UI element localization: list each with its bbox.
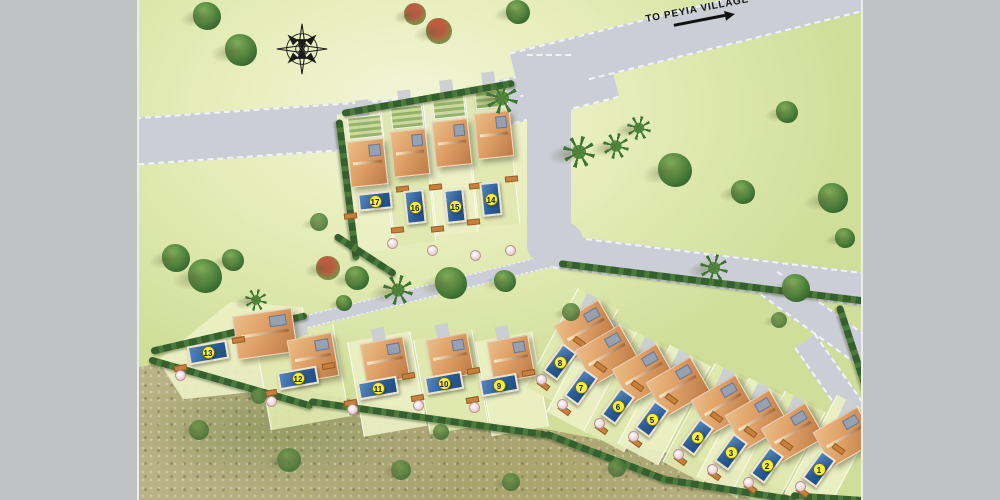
patio-table <box>707 464 718 475</box>
compass-icon <box>275 22 329 76</box>
bush-icon <box>502 473 520 491</box>
plot-number-badge: 1 <box>813 463 826 476</box>
tree-icon <box>336 295 352 311</box>
plot-number-badge: 17 <box>369 195 382 208</box>
patio-table <box>470 250 481 261</box>
tree-icon <box>225 34 257 66</box>
tree-icon <box>658 153 692 187</box>
villa-house <box>432 118 473 168</box>
tree-icon <box>435 267 467 299</box>
plot-number-badge: 11 <box>372 382 385 395</box>
patio-table <box>413 400 424 411</box>
bush-icon <box>391 460 411 480</box>
bush-icon <box>771 312 787 328</box>
site-plan: TO PEYIA VILLAGE 17161514 <box>137 0 863 500</box>
plot-number-badge: 16 <box>409 201 422 214</box>
tree-icon <box>506 0 530 24</box>
road-junction <box>527 220 583 266</box>
garden-pergola <box>390 104 424 129</box>
bush-icon <box>251 388 267 404</box>
palm-tree-icon <box>627 116 651 140</box>
red-shrub-icon <box>404 3 426 25</box>
plot-number-badge: 13 <box>202 346 215 359</box>
tree-icon <box>782 274 810 302</box>
tree-icon <box>776 101 798 123</box>
road-junction <box>521 58 587 110</box>
palm-tree-icon <box>383 275 413 305</box>
red-shrub-icon <box>426 18 452 44</box>
villa-house <box>474 110 515 160</box>
patio-table <box>469 402 480 413</box>
plot-number-badge: 7 <box>575 381 588 394</box>
palm-tree-icon <box>486 82 518 114</box>
patio-table <box>175 370 186 381</box>
bush-icon <box>277 448 301 472</box>
palm-tree-icon <box>603 133 629 159</box>
plot-number-badge: 12 <box>292 372 305 385</box>
patio-table <box>266 396 277 407</box>
villa-house <box>390 128 431 178</box>
patio-table <box>536 374 547 385</box>
plot-number-badge: 9 <box>493 379 506 392</box>
patio-table <box>557 399 568 410</box>
patio-table <box>347 404 358 415</box>
garden-pergola <box>347 114 383 139</box>
tree-icon <box>222 249 244 271</box>
tree-icon <box>731 180 755 204</box>
plot-number-badge: 8 <box>554 356 567 369</box>
bush-icon <box>562 303 580 321</box>
tree-icon <box>162 244 190 272</box>
tree-icon <box>345 266 369 290</box>
plot-number-badge: 5 <box>646 413 659 426</box>
palm-tree-icon <box>563 136 595 168</box>
patio-table <box>505 245 516 256</box>
tree-icon <box>193 2 221 30</box>
tree-icon <box>494 270 516 292</box>
plot-number-badge: 2 <box>761 459 774 472</box>
palm-tree-icon <box>700 254 728 282</box>
sun-lounger <box>505 175 519 182</box>
villa-house <box>347 138 389 188</box>
bush-icon <box>310 213 328 231</box>
plot-number-badge: 3 <box>725 446 738 459</box>
plot-number-badge: 15 <box>449 200 462 213</box>
patio-table <box>673 449 684 460</box>
patio-table <box>743 477 754 488</box>
plot-number-badge: 6 <box>612 400 625 413</box>
patio-table <box>387 238 398 249</box>
tree-icon <box>835 228 855 248</box>
bush-icon <box>433 424 449 440</box>
plot-number-badge: 14 <box>485 193 498 206</box>
bush-icon <box>608 459 626 477</box>
patio-table <box>594 418 605 429</box>
patio-table <box>795 481 806 492</box>
patio-table <box>427 245 438 256</box>
image-frame: TO PEYIA VILLAGE 17161514 <box>0 0 1000 500</box>
plot-number-badge: 4 <box>691 431 704 444</box>
palm-tree-icon <box>245 289 267 311</box>
tree-icon <box>818 183 848 213</box>
bush-icon <box>189 420 209 440</box>
patio-table <box>628 431 639 442</box>
plot-number-badge: 10 <box>438 377 451 390</box>
